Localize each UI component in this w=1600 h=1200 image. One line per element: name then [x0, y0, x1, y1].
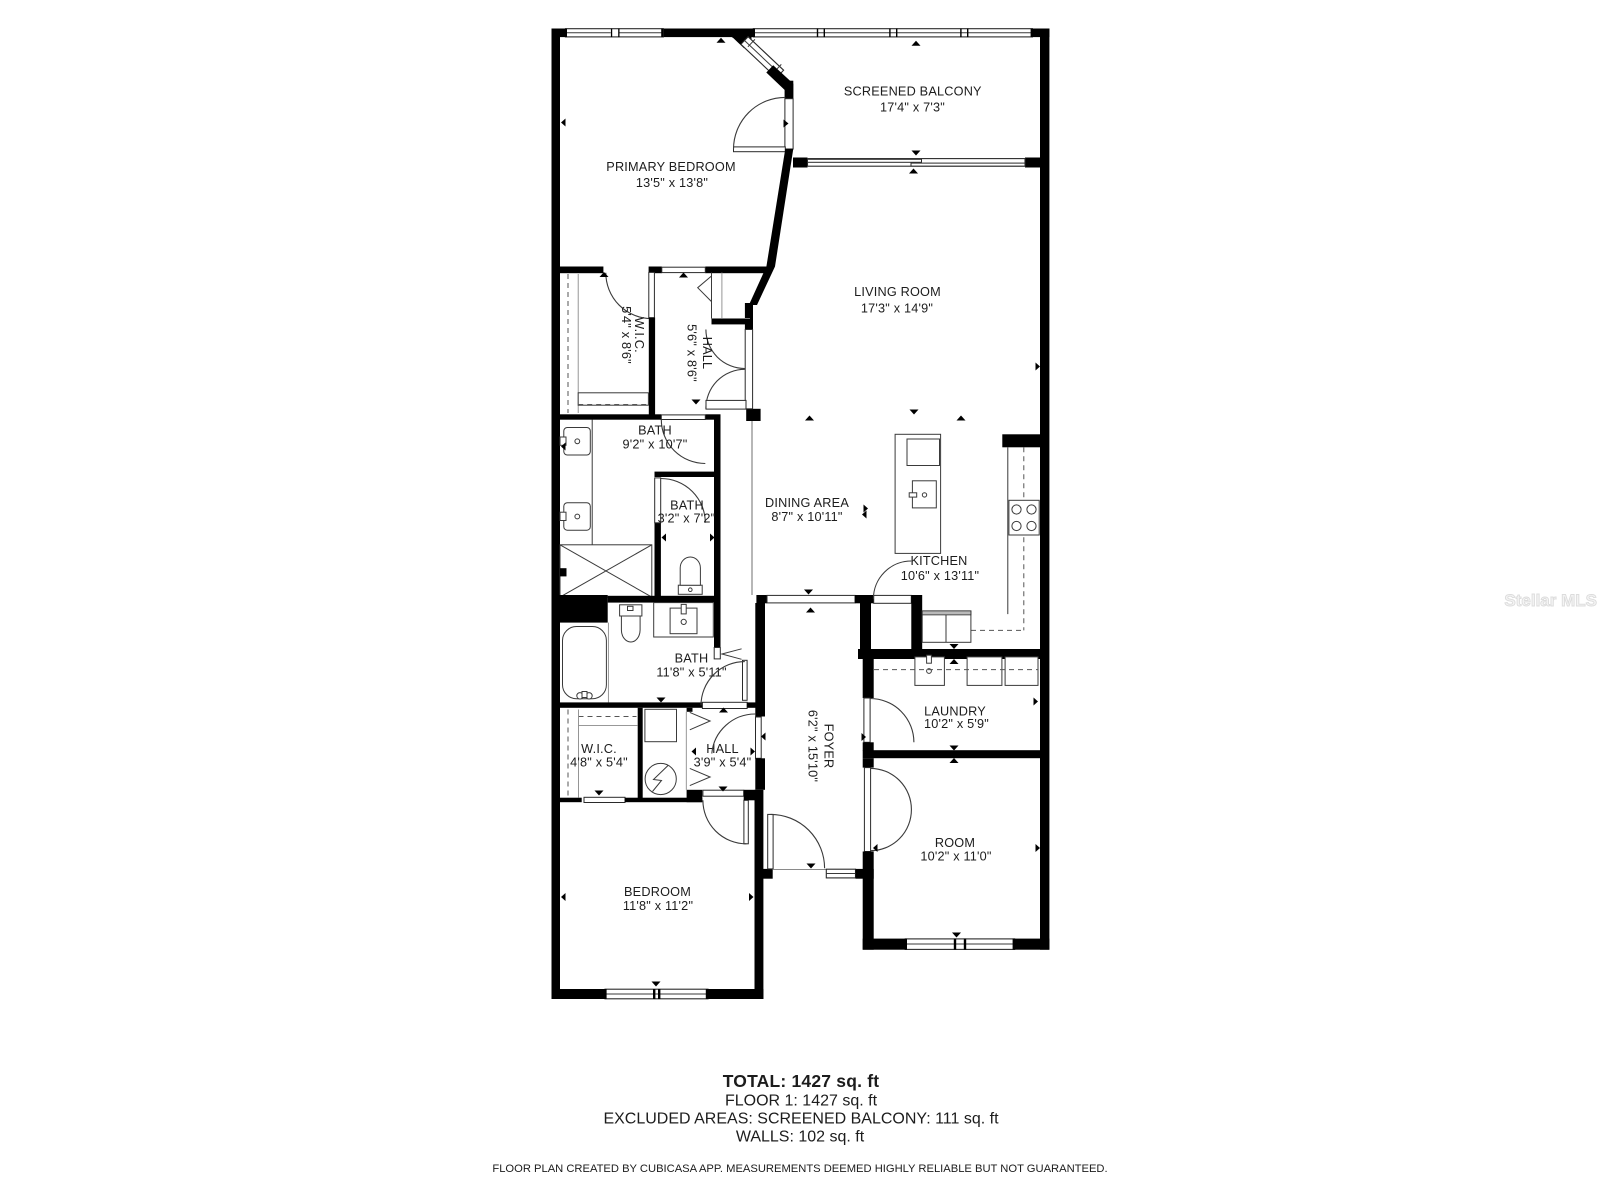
- svg-text:17'3" x 14'9": 17'3" x 14'9": [861, 302, 933, 316]
- svg-text:BEDROOM: BEDROOM: [624, 885, 691, 899]
- svg-text:FLOOR PLAN CREATED BY CUBICASA: FLOOR PLAN CREATED BY CUBICASA APP. MEAS…: [492, 1163, 1107, 1175]
- svg-text:W.I.C.: W.I.C.: [581, 742, 617, 756]
- svg-text:BATH: BATH: [638, 424, 672, 438]
- svg-text:8'7" x 10'11": 8'7" x 10'11": [771, 510, 842, 524]
- svg-text:FLOOR 1: 1427 sq. ft: FLOOR 1: 1427 sq. ft: [725, 1093, 878, 1110]
- svg-text:3'2" x 7'2": 3'2" x 7'2": [658, 512, 716, 526]
- svg-text:FOYER: FOYER: [821, 724, 835, 769]
- svg-text:LIVING ROOM: LIVING ROOM: [854, 285, 941, 299]
- svg-text:BATH: BATH: [675, 652, 709, 666]
- svg-text:Stellar MLS: Stellar MLS: [1504, 591, 1597, 610]
- svg-text:10'2" x 11'0": 10'2" x 11'0": [920, 850, 991, 864]
- svg-text:4'8" x 5'4": 4'8" x 5'4": [570, 756, 628, 770]
- svg-text:17'4" x 7'3": 17'4" x 7'3": [880, 100, 945, 114]
- svg-text:EXCLUDED AREAS: SCREENED BALCO: EXCLUDED AREAS: SCREENED BALCONY: 111 sq…: [603, 1111, 999, 1128]
- svg-text:HALL: HALL: [706, 742, 739, 756]
- svg-text:TOTAL: 1427 sq. ft: TOTAL: 1427 sq. ft: [723, 1071, 880, 1091]
- svg-text:3'9" x 5'4": 3'9" x 5'4": [694, 756, 752, 770]
- svg-text:9'2" x 10'7": 9'2" x 10'7": [623, 438, 688, 452]
- svg-text:5'4" x 8'6": 5'4" x 8'6": [619, 306, 633, 364]
- svg-text:WALLS: 102 sq. ft: WALLS: 102 sq. ft: [736, 1129, 865, 1146]
- svg-text:10'6" x 13'11": 10'6" x 13'11": [901, 569, 980, 583]
- svg-text:BATH: BATH: [670, 499, 704, 513]
- svg-text:13'5" x 13'8": 13'5" x 13'8": [636, 176, 708, 190]
- svg-text:11'8" x 11'2": 11'8" x 11'2": [623, 899, 693, 913]
- svg-text:KITCHEN: KITCHEN: [910, 554, 967, 568]
- svg-text:HALL: HALL: [700, 337, 714, 370]
- svg-text:ROOM: ROOM: [935, 836, 975, 850]
- svg-text:SCREENED BALCONY: SCREENED BALCONY: [844, 84, 982, 98]
- svg-text:6'2" x 15'10": 6'2" x 15'10": [806, 710, 820, 782]
- svg-text:DINING AREA: DINING AREA: [765, 496, 849, 510]
- svg-text:5'6" x 8'6": 5'6" x 8'6": [684, 324, 698, 382]
- svg-text:PRIMARY BEDROOM: PRIMARY BEDROOM: [606, 160, 735, 174]
- svg-text:10'2" x 5'9": 10'2" x 5'9": [924, 717, 989, 731]
